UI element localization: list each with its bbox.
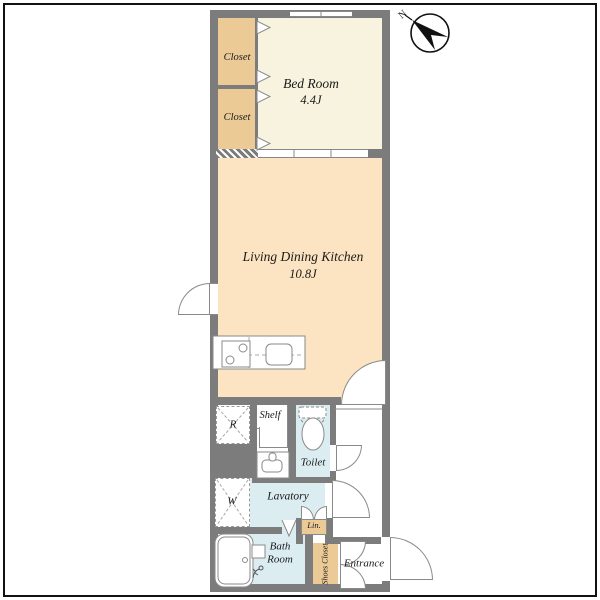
- west-door-gap: [210, 283, 218, 315]
- refrigerator-label: R: [230, 419, 237, 432]
- wall-lavatory-bath: [213, 527, 282, 534]
- wall-ldk-south: [210, 397, 341, 405]
- ldk-size-label: 10.8J: [289, 267, 316, 281]
- hallway: [333, 401, 383, 541]
- closet-upper-label: Closet: [224, 52, 251, 64]
- lavatory-label: Lavatory: [267, 490, 309, 503]
- wall-closet-divider: [218, 85, 256, 89]
- wall-utility-block: [210, 444, 257, 478]
- wall-closet-bedroom: [255, 16, 258, 150]
- wall-east: [382, 10, 390, 592]
- wall-toilet-east-upper: [330, 404, 336, 445]
- wall-bedroom-ldk-east: [368, 149, 382, 158]
- sliding-partition-bedroom-ldk: [258, 149, 368, 158]
- wall-toilet-west: [288, 404, 296, 483]
- shoes-closet-label: Shoes Closet: [320, 543, 329, 584]
- floor-plan-canvas: Closet Closet Bed Room 4.4J Living Dinin…: [0, 0, 600, 600]
- entrance-label: Entrance: [344, 558, 384, 571]
- washer-label: W: [227, 496, 236, 509]
- shelf-area-lower: [259, 427, 288, 448]
- shelf-label: Shelf: [260, 410, 281, 422]
- bathroom-label-line2: Room: [267, 554, 293, 567]
- bedroom-label: Bed Room: [283, 76, 339, 92]
- bedroom-size-label: 4.4J: [300, 93, 321, 107]
- bathroom-label-line1: Bath: [270, 541, 291, 554]
- wall-toilet-south: [252, 477, 336, 483]
- window-north: [290, 11, 352, 17]
- ldk-label: Living Dining Kitchen: [243, 249, 364, 265]
- linen-label: Lin.: [307, 521, 320, 531]
- wall-bath-east: [305, 534, 313, 590]
- closet-lower-label: Closet: [224, 112, 251, 124]
- toilet-label: Toilet: [301, 457, 326, 470]
- wall-hatched-section: [216, 149, 258, 158]
